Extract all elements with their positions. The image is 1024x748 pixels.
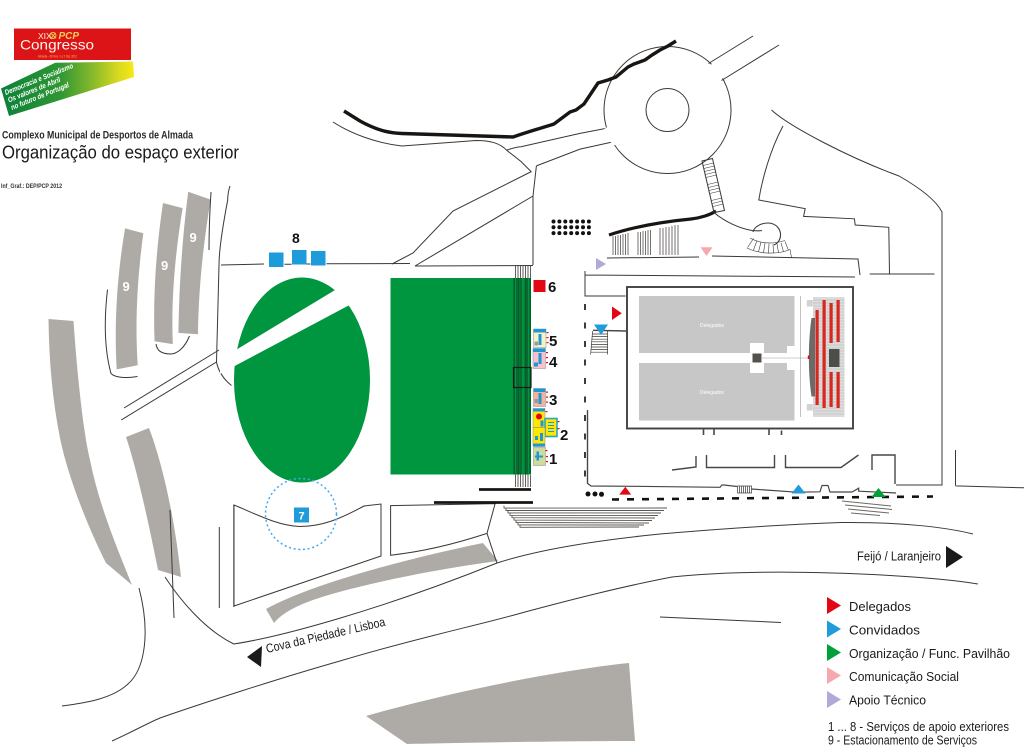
svg-text:3: 3 — [549, 392, 557, 409]
svg-text:9 - Estacionamento de Serviços: 9 - Estacionamento de Serviços — [828, 733, 977, 748]
svg-text:9: 9 — [161, 258, 168, 273]
svg-text:Delegados: Delegados — [849, 599, 911, 614]
svg-text:Delegados: Delegados — [700, 390, 724, 396]
svg-text:Organização / Func. Pavilhão: Organização / Func. Pavilhão — [849, 646, 1010, 661]
svg-text:4: 4 — [549, 354, 558, 371]
svg-text:Organização do espaço exterior: Organização do espaço exterior — [2, 142, 239, 163]
svg-text:2: 2 — [560, 427, 568, 444]
svg-text:Convidados: Convidados — [849, 623, 921, 638]
svg-text:Feijó / Laranjeiro: Feijó / Laranjeiro — [857, 549, 941, 564]
svg-text:Complexo Municipal de Desporto: Complexo Municipal de Desportos de Almad… — [2, 130, 194, 142]
svg-text:Inf_Graf.: DEP/PCP 2012: Inf_Graf.: DEP/PCP 2012 — [1, 183, 62, 190]
svg-text:5: 5 — [549, 333, 557, 350]
svg-text:7: 7 — [298, 511, 304, 523]
svg-text:9: 9 — [190, 230, 197, 245]
svg-text:Comunicação Social: Comunicação Social — [849, 669, 959, 684]
svg-text:Delegados: Delegados — [700, 323, 724, 329]
svg-text:6: 6 — [548, 279, 556, 296]
svg-text:8: 8 — [292, 230, 300, 246]
svg-text:Congresso: Congresso — [20, 37, 94, 52]
svg-text:Almada – 30 Nov. 1 e 2 Dez 201: Almada – 30 Nov. 1 e 2 Dez 2012 — [38, 55, 77, 59]
svg-text:1: 1 — [549, 451, 557, 468]
svg-text:9: 9 — [123, 279, 130, 294]
svg-text:Apoio Técnico: Apoio Técnico — [849, 693, 926, 708]
